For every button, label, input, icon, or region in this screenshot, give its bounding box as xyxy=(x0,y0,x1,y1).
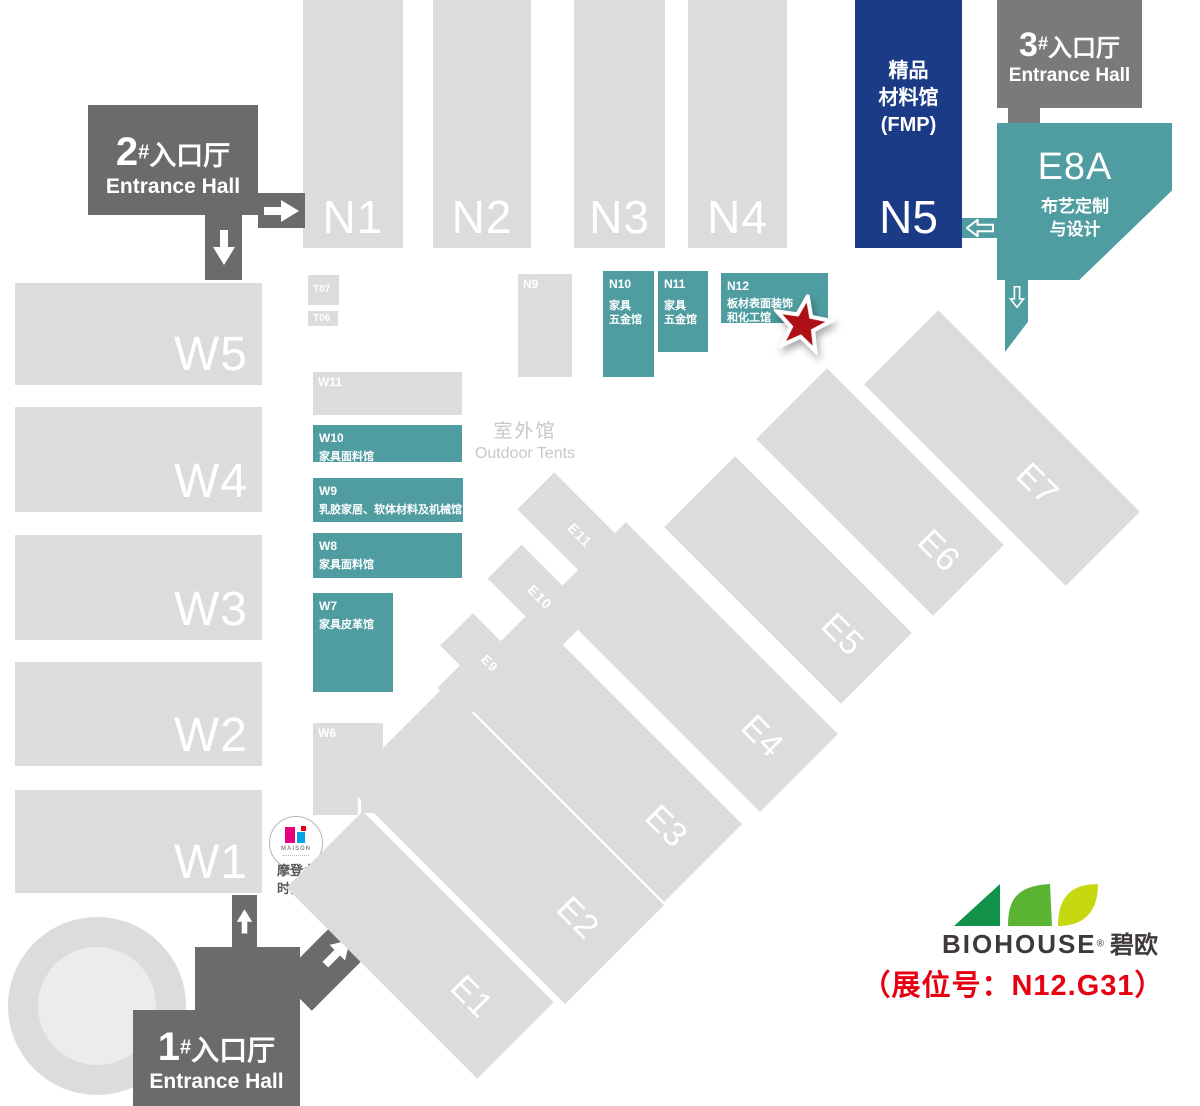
biohouse-cn-name: 碧欧 xyxy=(1110,932,1158,959)
hall-e8a-line2: 与设计 xyxy=(1000,219,1150,242)
block-w7-desc: 家具皮革馆 xyxy=(319,618,393,632)
hall-n2: N2 xyxy=(433,0,531,248)
down-arrow-icon xyxy=(211,230,237,266)
block-n11-line2: 五金馆 xyxy=(664,313,708,327)
hall-n1-label: N1 xyxy=(323,194,384,248)
block-n10-line1: 家具 xyxy=(609,299,654,313)
hall-n3: N3 xyxy=(574,0,665,248)
maison-logo-shape-blue xyxy=(297,832,305,843)
hall-e8a-text: E8A 布艺定制 与设计 xyxy=(1000,148,1150,242)
biohouse-leaves-icon xyxy=(952,882,1102,928)
outline-left-arrow-icon xyxy=(966,219,994,237)
hall-n5-line3: (FMP) xyxy=(855,112,962,139)
hall-w2-label: W2 xyxy=(174,712,262,766)
block-w9: W9 乳胶家居、软体材料及机械馆 xyxy=(313,478,463,522)
hall-e2-label: E2 xyxy=(551,891,627,967)
hall-w5-label: W5 xyxy=(174,331,262,385)
hall-w2: W2 xyxy=(15,662,262,766)
entrance-2-title: 2#入口厅 xyxy=(88,129,258,175)
block-w7: W7 家具皮革馆 xyxy=(313,593,393,692)
entrance-hall-2: 2#入口厅 Entrance Hall xyxy=(88,105,258,215)
booth-number-caption: （展位号：N12.G31） xyxy=(860,962,1166,1004)
block-w10-id: W10 xyxy=(319,431,462,447)
entrance-2-subtitle: Entrance Hall xyxy=(88,175,258,199)
outdoor-tents-caption: 室外馆 Outdoor Tents xyxy=(450,420,600,464)
hall-w3-label: W3 xyxy=(174,586,262,640)
registered-mark-icon: ® xyxy=(1097,939,1104,950)
block-w8-id: W8 xyxy=(319,539,462,555)
hall-n5: 精品 材料馆 (FMP) N5 xyxy=(855,0,962,248)
block-w10-desc: 家具面料馆 xyxy=(319,450,462,464)
e8a-left-connector xyxy=(962,218,997,238)
block-e11-label: E11 xyxy=(565,520,594,549)
entrance-1-subtitle: Entrance Hall xyxy=(133,1070,300,1094)
expo-floor-map: N1 N2 N3 N4 精品 材料馆 (FMP) N5 3#入口厅 Entran… xyxy=(0,0,1200,1106)
block-e9-label: E9 xyxy=(479,652,501,674)
e8a-down-connector xyxy=(1005,280,1028,352)
block-w9-desc: 乳胶家居、软体材料及机械馆 xyxy=(319,503,463,517)
entrance-3-subtitle: Entrance Hall xyxy=(997,65,1142,87)
entrance-2-right-path xyxy=(258,193,305,228)
outdoor-tents-cn: 室外馆 xyxy=(450,420,600,444)
entrance-1-title: 1#入口厅 xyxy=(133,1024,300,1070)
block-w11-label: W11 xyxy=(313,372,462,388)
block-n11: N11 家具 五金馆 xyxy=(658,271,708,352)
maison-logo-rule xyxy=(283,855,309,856)
block-n9-label: N9 xyxy=(518,274,572,290)
block-w9-id: W9 xyxy=(319,484,463,500)
biohouse-logo xyxy=(952,882,1102,928)
biohouse-name: BIOHOUSE xyxy=(942,929,1097,959)
block-n11-id: N11 xyxy=(664,277,708,293)
hall-w4-label: W4 xyxy=(174,458,262,512)
block-w6-label: W6 xyxy=(313,723,383,739)
hall-w1-label: W1 xyxy=(174,839,262,893)
block-w10: W10 家具面料馆 xyxy=(313,425,462,462)
entrance-2-down-path xyxy=(205,215,242,280)
hall-e8a-line1: 布艺定制 xyxy=(1000,196,1150,219)
hall-e8a-label: E8A xyxy=(1000,148,1150,186)
entrance-3-title: 3#入口厅 xyxy=(997,26,1142,65)
hall-n4-label: N4 xyxy=(707,194,768,248)
block-n10-id: N10 xyxy=(609,277,654,293)
booth-location-star-icon xyxy=(767,289,838,357)
hall-w5: W5 xyxy=(15,283,262,385)
entrance-1-mid-block xyxy=(195,947,300,1010)
block-n11-line1: 家具 xyxy=(664,299,708,313)
block-w8: W8 家具面料馆 xyxy=(313,533,462,578)
maison-logo-shape-red xyxy=(301,826,306,831)
up-arrow-icon xyxy=(234,909,256,934)
hall-n3-label: N3 xyxy=(589,194,650,248)
hall-e4-label: E4 xyxy=(735,709,811,785)
entrance-hall-1: 1#入口厅 Entrance Hall xyxy=(133,1010,300,1106)
block-e10-label: E10 xyxy=(525,582,555,612)
entrance-3-stem xyxy=(1008,108,1040,123)
block-n10-line2: 五金馆 xyxy=(609,313,654,327)
maison-logo-shape-magenta xyxy=(285,827,295,843)
entrance-hall-3: 3#入口厅 Entrance Hall xyxy=(997,0,1142,108)
block-w7-id: W7 xyxy=(319,599,393,615)
hall-e7-label: E7 xyxy=(1010,456,1114,560)
hall-e6-label: E6 xyxy=(911,523,980,592)
block-t06: T06 xyxy=(308,311,338,326)
hall-e3-label: E3 xyxy=(639,799,715,875)
hall-n4: N4 xyxy=(688,0,787,248)
hall-n2-label: N2 xyxy=(452,194,513,248)
hall-e1-label: E1 xyxy=(444,969,527,1052)
block-t06-label: T06 xyxy=(308,311,338,324)
block-t07: T07 xyxy=(308,275,339,305)
hall-n5-label: N5 xyxy=(855,194,962,240)
hall-n5-line2: 材料馆 xyxy=(855,85,962,112)
hall-w3: W3 xyxy=(15,535,262,640)
entrance-1-up-path xyxy=(232,895,257,947)
right-arrow-icon xyxy=(264,198,300,224)
hall-n1: N1 xyxy=(303,0,403,248)
block-w8-desc: 家具面料馆 xyxy=(319,558,462,572)
block-n10: N10 家具 五金馆 xyxy=(603,271,654,377)
outdoor-tents-en: Outdoor Tents xyxy=(450,444,600,464)
biohouse-wordmark: BIOHOUSE®碧欧 xyxy=(935,925,1165,960)
block-w11: W11 xyxy=(313,372,462,415)
maison-logo-text: MAISON xyxy=(270,846,322,852)
hall-w1: W1 xyxy=(15,790,262,893)
block-n9: N9 xyxy=(518,274,572,377)
hall-n5-line1: 精品 xyxy=(855,58,962,85)
outline-down-arrow-icon xyxy=(1004,286,1030,308)
hall-e5-label: E5 xyxy=(815,607,888,680)
block-t07-label: T07 xyxy=(308,275,339,295)
hall-w4: W4 xyxy=(15,407,262,512)
